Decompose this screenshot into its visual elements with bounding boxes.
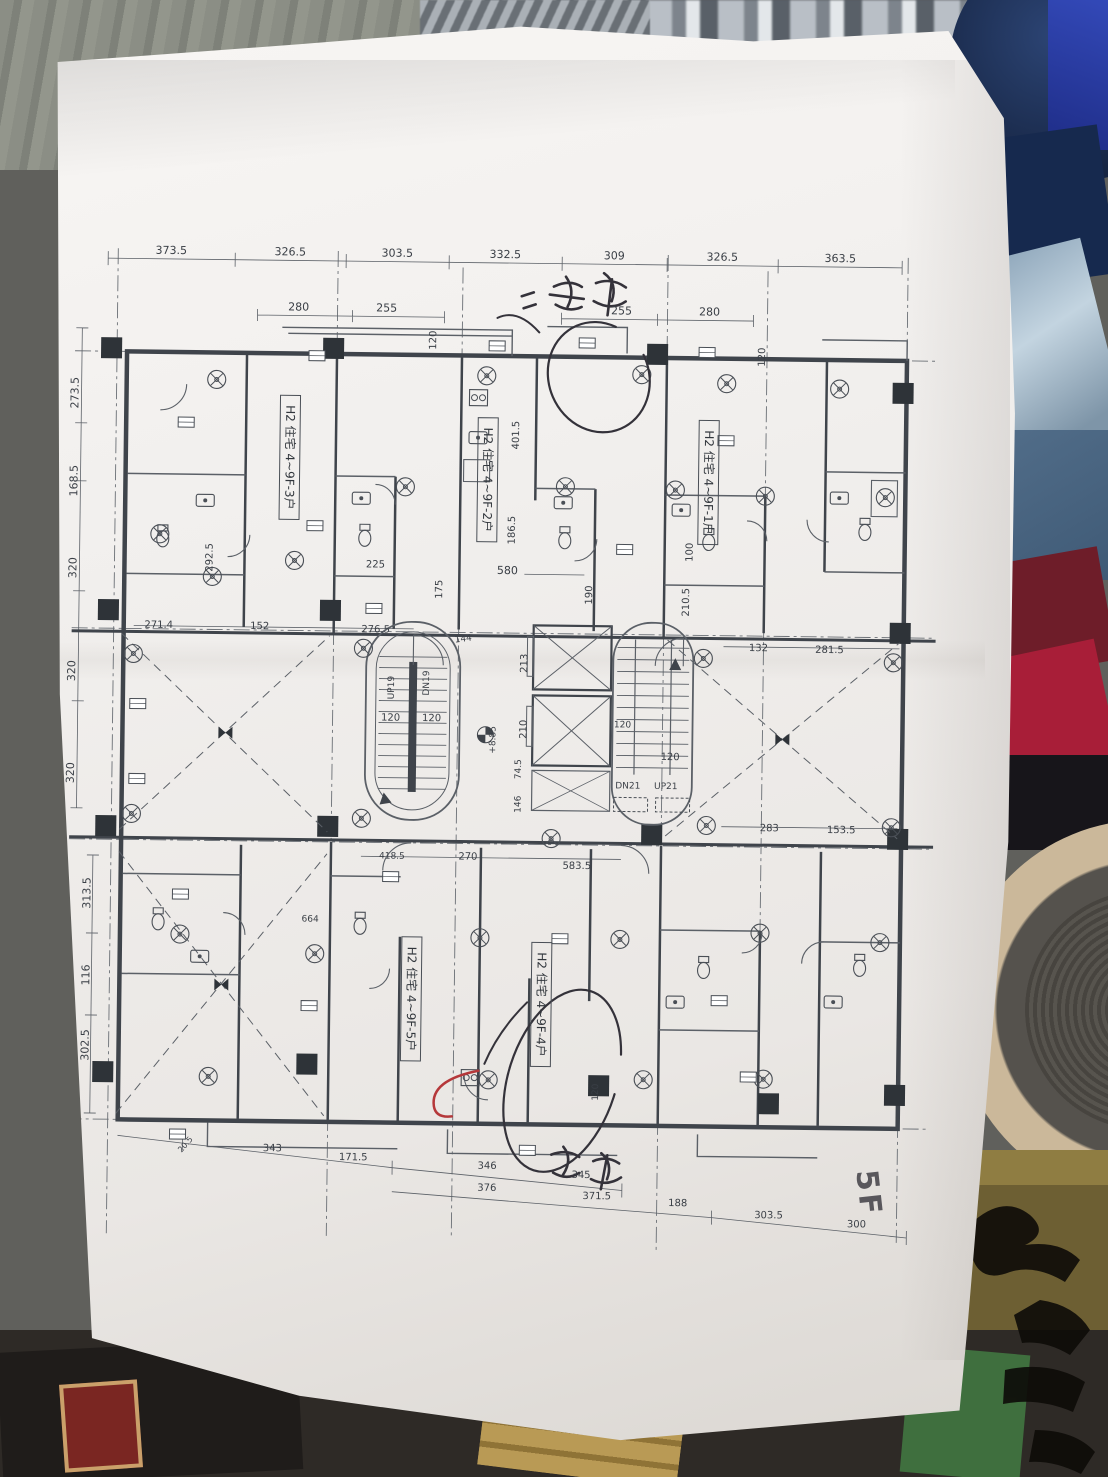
paper-crease (55, 60, 955, 180)
dimension-label: UP21 (654, 782, 678, 792)
dimension-label: 303.5 (381, 246, 413, 259)
dimension-label: 280 (288, 300, 309, 313)
dimension-label: 332.5 (489, 248, 521, 261)
dimension-label: 303.5 (754, 1210, 783, 1221)
dimension-label: 120 (381, 713, 400, 724)
dimension-label: 120 (591, 1083, 601, 1101)
dimension-label: 132 (749, 643, 768, 654)
dimension-label: 120 (422, 713, 441, 724)
blueprint-paper: H2 住宅 4~9F-3户H2 住宅 4~9F-2户H2 住宅 4~9F-1户H… (0, 0, 1108, 1477)
dimension-label: 309 (604, 249, 625, 262)
dimension-label: 363.5 (824, 252, 856, 265)
dimension-label: 273.5 (68, 377, 81, 409)
dimension-label: 313.5 (80, 877, 93, 909)
dimension-label: 281.5 (815, 645, 844, 656)
dimension-label: 100 (685, 543, 696, 562)
dimension-label: 343 (263, 1143, 282, 1154)
floor-label-handwritten: 5F (848, 1168, 888, 1219)
dimension-label: +8.85 (488, 726, 498, 754)
unit-label: H2 住宅 4~9F-3户 (282, 405, 298, 510)
building-walls (65, 321, 939, 1159)
dimension-label: 276.5 (361, 624, 390, 635)
stair-left (364, 621, 460, 820)
dimension-label: 373.5 (155, 244, 187, 257)
dimension-label: 120 (614, 720, 632, 730)
elevator-shafts (525, 625, 611, 811)
floor-plan-drawing: H2 住宅 4~9F-3户H2 住宅 4~9F-2户H2 住宅 4~9F-1户H… (56, 233, 949, 1304)
pen-circle-bottom-tail (484, 1002, 527, 1065)
box-red-label (59, 1379, 143, 1472)
dimension-label: 280 (699, 305, 720, 318)
photo-scene: H2 住宅 4~9F-3户H2 住宅 4~9F-2户H2 住宅 4~9F-1户H… (0, 0, 1108, 1477)
dimension-label: 302.5 (78, 1029, 91, 1061)
dimension-label: 120 (428, 331, 439, 350)
dimension-label: 120 (661, 752, 680, 763)
dimension-label: 320 (64, 762, 77, 783)
dimension-label: 210 (518, 720, 529, 739)
dimension-label: 255 (376, 301, 397, 314)
dimension-label: 270 (458, 851, 477, 862)
void-cross-bracing (116, 633, 900, 1122)
dimension-label: 152 (250, 621, 269, 632)
dimension-label: 74.5 (514, 759, 524, 779)
dimension-label: 376 (477, 1183, 496, 1194)
dimension-label: 120 (757, 348, 768, 367)
dimension-label: 171.5 (339, 1152, 368, 1163)
dimension-label: 271.4 (144, 620, 173, 631)
dimension-label: UP19 (387, 676, 397, 700)
dimension-label: 186.5 (507, 516, 518, 545)
dimension-label: 144 (454, 633, 473, 645)
dimension-label: 283 (760, 823, 779, 834)
dimension-label: 175 (434, 580, 445, 599)
dimension-label: 190 (584, 585, 595, 604)
dimension-label: 146 (513, 795, 523, 813)
dimension-label: 320 (65, 660, 78, 681)
dimension-label: 371.5 (582, 1191, 611, 1202)
unit-label: H2 住宅 4~9F-5户 (404, 947, 420, 1052)
dimension-label: DN21 (615, 781, 640, 791)
dimension-label: 580 (497, 564, 518, 577)
dimension-label: 188 (668, 1198, 687, 1209)
dimension-label: 418.5 (379, 852, 405, 862)
structural-axis-lines (64, 248, 940, 1253)
dimension-label: 326.5 (274, 245, 306, 258)
unit-label: H2 住宅 4~9F-1户 (701, 430, 717, 535)
dimension-label: 320 (66, 557, 79, 578)
dimension-label: DN19 (422, 670, 432, 696)
dimension-label: 664 (301, 915, 319, 925)
dimension-label: 401.5 (511, 421, 522, 450)
dimension-label: 116 (79, 964, 92, 985)
dimension-label: 583.5 (562, 861, 591, 872)
structural-columns (92, 335, 914, 1116)
dimension-label: 213 (519, 654, 530, 673)
unit-label: H2 住宅 4~9F-2户 (480, 427, 496, 532)
dimension-label: 168.5 (67, 465, 80, 497)
dimension-label: 346 (478, 1161, 497, 1172)
dimension-label: 326.5 (706, 250, 738, 263)
fan-symbols (119, 359, 906, 1093)
dimension-label: 153.5 (827, 825, 856, 836)
unit-label: H2 住宅 4~9F-4户 (533, 952, 549, 1057)
dimension-label: 225 (366, 559, 385, 570)
dimension-label: 300 (847, 1219, 866, 1230)
dimension-label: 345 (571, 1170, 590, 1181)
dimension-label: 292.5 (204, 543, 215, 572)
dimension-label: 210.5 (681, 588, 692, 617)
dimension-label: 255 (611, 304, 632, 317)
